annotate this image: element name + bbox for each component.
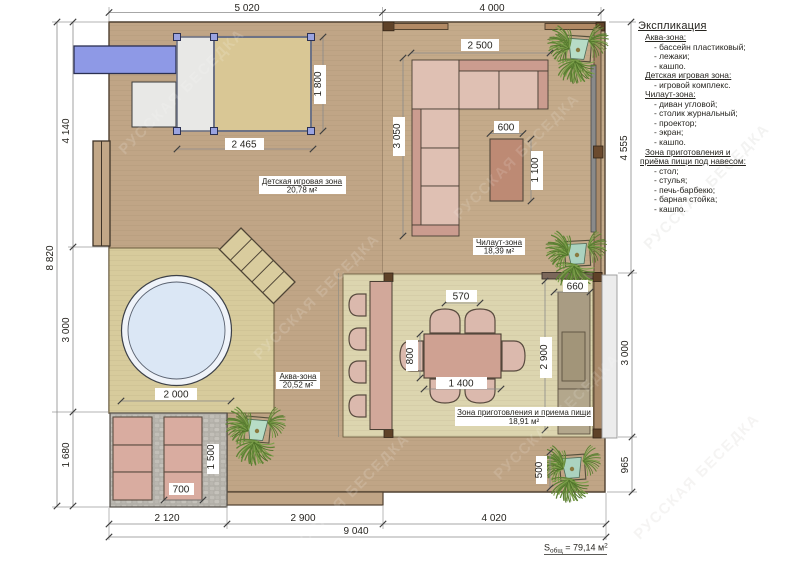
svg-text:2 000: 2 000: [163, 390, 188, 401]
svg-text:2 900: 2 900: [539, 344, 550, 369]
svg-text:9 040: 9 040: [343, 526, 368, 537]
svg-text:570: 570: [453, 292, 470, 303]
svg-text:5 020: 5 020: [234, 3, 259, 14]
svg-text:1 100: 1 100: [530, 157, 541, 182]
svg-text:1 500: 1 500: [206, 444, 217, 469]
svg-text:1 400: 1 400: [448, 379, 473, 390]
svg-text:8 820: 8 820: [45, 245, 56, 270]
svg-text:500: 500: [534, 461, 545, 478]
svg-text:3 000: 3 000: [61, 317, 72, 342]
svg-text:800: 800: [405, 347, 416, 364]
svg-text:4 020: 4 020: [481, 513, 506, 524]
svg-text:20,52 м²: 20,52 м²: [283, 381, 314, 390]
svg-text:2 465: 2 465: [231, 140, 256, 151]
svg-text:600: 600: [498, 123, 515, 134]
svg-text:20,78 м²: 20,78 м²: [287, 186, 318, 195]
svg-text:2 120: 2 120: [154, 513, 179, 524]
svg-text:660: 660: [567, 282, 584, 293]
svg-text:4 555: 4 555: [619, 135, 630, 160]
svg-text:2 500: 2 500: [467, 41, 492, 52]
svg-text:4 140: 4 140: [61, 118, 72, 143]
svg-text:4 000: 4 000: [479, 3, 504, 14]
svg-text:18,91 м²: 18,91 м²: [509, 417, 540, 426]
svg-text:Sобщ = 79,14 м2: Sобщ = 79,14 м2: [544, 543, 608, 555]
svg-text:РУССКАЯ БЕСЕДКА: РУССКАЯ БЕСЕДКА: [631, 411, 764, 544]
svg-text:1 680: 1 680: [61, 442, 72, 467]
svg-text:3 050: 3 050: [392, 123, 403, 148]
svg-text:700: 700: [173, 485, 190, 496]
svg-text:1 800: 1 800: [313, 71, 324, 96]
svg-text:965: 965: [620, 456, 631, 473]
svg-text:18,39 м²: 18,39 м²: [484, 247, 515, 256]
